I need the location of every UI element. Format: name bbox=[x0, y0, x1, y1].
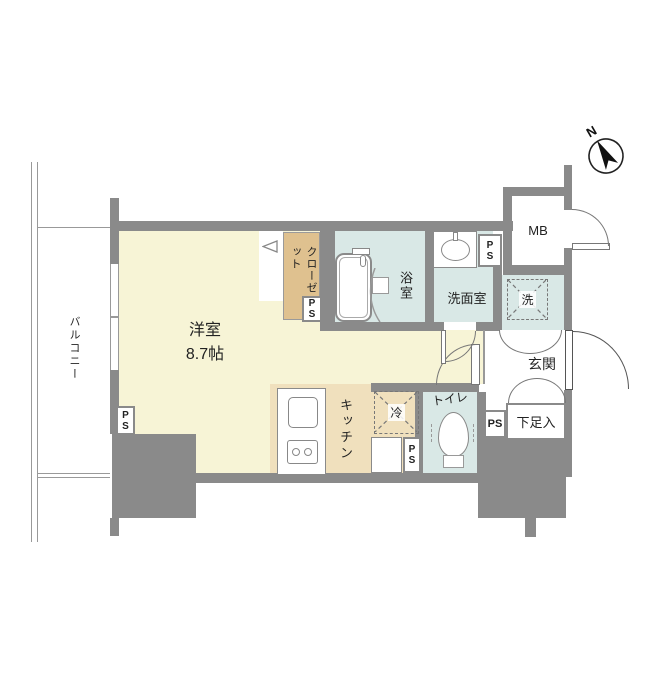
mb-door-swing bbox=[572, 209, 609, 246]
pipe-space-kitchen-label: PS bbox=[408, 444, 417, 466]
closet-label: クローゼット bbox=[285, 246, 319, 302]
bathtub bbox=[335, 253, 372, 322]
refrigerator-space: 冷 bbox=[374, 391, 419, 434]
wall-mb-top bbox=[503, 187, 572, 196]
washing-machine-space: 洗 bbox=[507, 279, 548, 320]
pipe-space-entrance: PS bbox=[484, 410, 506, 438]
window-mullion bbox=[110, 316, 119, 318]
wall-top bbox=[110, 221, 513, 231]
kitchen-label: キッチン bbox=[336, 398, 355, 462]
living-room-name: 洋室 bbox=[150, 316, 260, 340]
wall-mb-left bbox=[503, 187, 512, 274]
shoe-cabinet-label: 下足入 bbox=[516, 412, 555, 431]
entrance-door-swing bbox=[573, 331, 629, 389]
laundry-door-left bbox=[499, 330, 530, 354]
toilet-dashed-right bbox=[473, 424, 475, 442]
toilet-bowl-icon bbox=[438, 412, 469, 457]
compass-north-label: N bbox=[584, 123, 600, 141]
wall-bottom bbox=[196, 473, 480, 483]
wall-left-stub bbox=[110, 518, 119, 536]
balcony-top-line bbox=[38, 227, 110, 229]
wall-closet-bath bbox=[320, 231, 335, 330]
wall-bath-bottom bbox=[320, 322, 430, 331]
living-room-size: 8.7帖 bbox=[150, 340, 260, 364]
laundry-label: 洗 bbox=[519, 291, 535, 308]
wall-washroom-laundry bbox=[493, 265, 502, 330]
washroom-tap-icon bbox=[453, 232, 458, 241]
shoe-cabinet-door-right bbox=[537, 378, 566, 403]
bath-faucet-icon bbox=[352, 248, 370, 255]
shoe-cabinet-door-left bbox=[508, 378, 537, 403]
pipe-space-left: PS bbox=[116, 406, 135, 435]
laundry-door-right bbox=[530, 330, 562, 354]
wall-left-upper bbox=[110, 198, 119, 264]
kitchen-stove-icon bbox=[287, 440, 318, 464]
pillar-right bbox=[478, 437, 566, 518]
toilet-dashed-left bbox=[431, 424, 433, 442]
floor-plan: バルコニー クローゼット PS 浴室 洗面室 PS bbox=[0, 0, 652, 689]
pipe-space-washroom: PS bbox=[478, 234, 502, 267]
wall-right-b bbox=[564, 248, 572, 330]
compass-icon: N bbox=[576, 114, 634, 184]
pipe-space-kitchen: PS bbox=[403, 437, 421, 473]
wall-right-a bbox=[564, 165, 572, 210]
washroom-label: 洗面室 bbox=[441, 288, 493, 307]
refrigerator-label: 冷 bbox=[388, 404, 404, 421]
entrance-label: 玄関 bbox=[519, 354, 565, 374]
pipe-space-entrance-label: PS bbox=[488, 418, 503, 430]
pipe-space-left-label: PS bbox=[121, 410, 130, 432]
washroom-sink-icon bbox=[441, 239, 470, 261]
closet-door-arrow-icon bbox=[262, 240, 278, 253]
kitchen-cabinet bbox=[371, 437, 402, 473]
kitchen-sink-icon bbox=[288, 397, 318, 428]
pipe-space-washroom-label: PS bbox=[486, 240, 495, 262]
toilet-base bbox=[443, 455, 464, 468]
stove-burner-left-icon bbox=[292, 448, 300, 456]
pipe-space-closet: PS bbox=[302, 296, 322, 322]
bath-label: 浴室 bbox=[396, 271, 415, 301]
pipe-space-closet-label: PS bbox=[308, 298, 317, 320]
stove-burner-right-icon bbox=[304, 448, 312, 456]
pillar-left bbox=[112, 434, 196, 518]
wall-mb-bottom bbox=[503, 265, 572, 275]
meter-box-label: MB bbox=[519, 223, 557, 238]
balcony-railing bbox=[31, 162, 38, 542]
entrance-step-line bbox=[483, 330, 485, 384]
balcony-bottom-line bbox=[38, 473, 110, 478]
bath-shower-hose-icon bbox=[360, 255, 366, 267]
pillar-right-stub bbox=[525, 518, 536, 537]
shoe-cabinet: 下足入 bbox=[506, 403, 566, 440]
balcony-label: バルコニー bbox=[66, 316, 82, 381]
entrance-door-leaf bbox=[565, 330, 573, 390]
living-room-label: 洋室 8.7帖 bbox=[150, 316, 260, 364]
bath-counter bbox=[372, 277, 389, 294]
